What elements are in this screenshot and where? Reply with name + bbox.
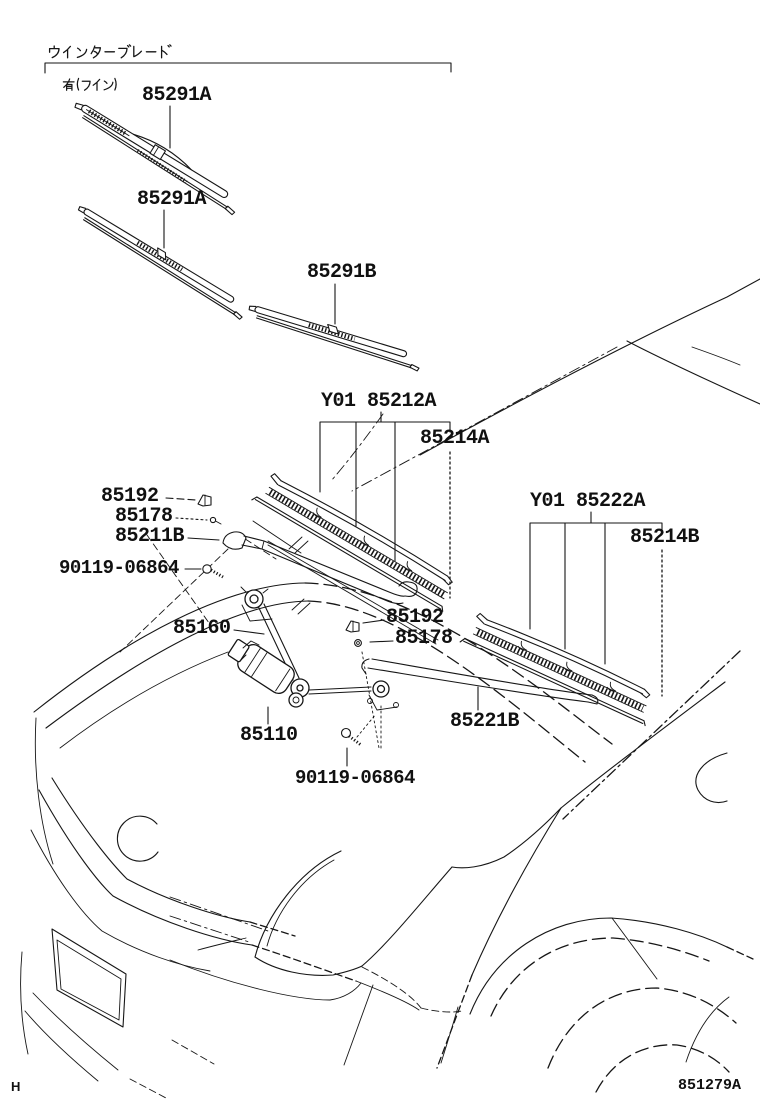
page-code: H [11,1080,20,1093]
a-pillar [561,682,725,808]
jp-title-winter-blade [50,45,171,58]
part-label-85214a: 85214A [420,429,489,449]
wiper-blade-85291a [73,202,250,319]
figure-number: 851279A [678,1078,741,1093]
license-plate [52,929,126,1027]
jp-subtitle-with-fin [63,78,116,90]
part-label-85192-left: 85192 [101,487,159,507]
part-label-85192-right: 85192 [386,608,444,628]
winter-blade-group-bracket [45,63,451,73]
clip-85192-left [198,495,211,506]
part-label-85291a-fin: 85291A [142,86,211,106]
roof-side-branch [627,341,760,404]
clip-85192-right [346,621,359,632]
wiper-arm-85221b [362,659,598,704]
bolt-90119-left [203,565,223,577]
part-label-90119-right: 90119-06864 [295,769,415,788]
part-label-85178-left: 85178 [115,507,173,527]
parts-diagram-page: ウインターブレード 有(フイン) [0,0,760,1112]
part-label-85291b: 85291B [307,263,376,283]
cowl-line [34,583,305,712]
part-label-90119-left: 90119-06864 [59,559,179,578]
part-label-85178-right: 85178 [395,629,453,649]
bolt-90119-right [342,729,362,746]
nut-85178-right [355,640,362,647]
wiper-blade-assembly-85222a [459,611,660,726]
diagram-line-art [0,0,760,1112]
emblem-circle [117,816,158,861]
part-label-85214b: 85214B [630,528,699,548]
part-label-85160: 85160 [173,619,231,639]
a-pillar-dashed [563,651,740,819]
part-label-y01-85212a: Y01 85212A [321,392,436,412]
wiper-motor-85110 [224,635,303,707]
part-label-y01-85222a: Y01 85222A [530,492,645,512]
part-label-85291a: 85291A [137,190,206,210]
part-label-85211b: 85211B [115,527,184,547]
wheel-arch [470,918,753,1092]
mirror-curve [696,753,727,803]
wiper-link-85160 [241,587,399,710]
part-label-85110: 85110 [240,726,298,746]
headlight [255,851,452,975]
screw-85178-left [210,517,221,524]
part-label-85221b: 85221B [450,712,519,732]
